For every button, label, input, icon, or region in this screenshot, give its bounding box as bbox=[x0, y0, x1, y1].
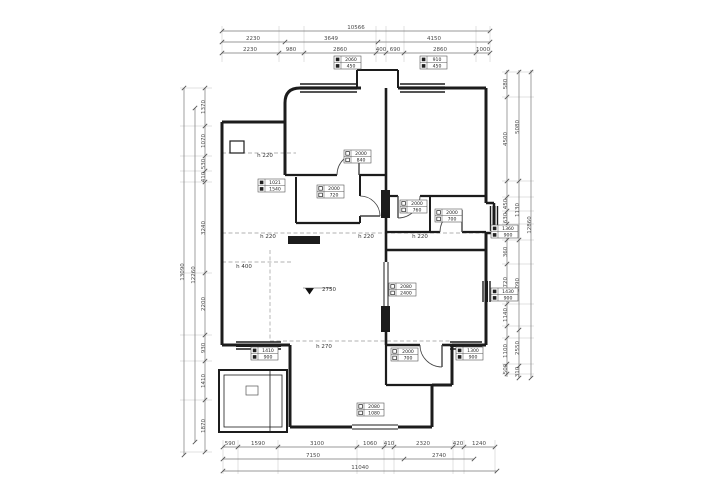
dim-text-right: 580 bbox=[503, 78, 509, 89]
door-label-box: 2000840 bbox=[344, 150, 371, 164]
height-note: h 220 bbox=[260, 234, 276, 240]
dim-text-left: 1410 bbox=[201, 374, 207, 388]
dim-text-left: 930 bbox=[201, 342, 207, 353]
dim-text-bottom: 1060 bbox=[363, 441, 377, 447]
window-key-icon bbox=[493, 227, 497, 231]
dim-text-bottom: 1590 bbox=[251, 441, 265, 447]
wall-fill bbox=[381, 306, 390, 332]
label-box-value: 2060 bbox=[345, 57, 357, 63]
window-label-box: 1410900 bbox=[251, 347, 278, 361]
label-box-value: 450 bbox=[347, 64, 356, 70]
level-value: 2750 bbox=[322, 287, 336, 293]
wall-fill bbox=[381, 190, 390, 218]
dim-text-left: 1070 bbox=[201, 134, 207, 148]
dim-text-top: 2230 bbox=[243, 47, 257, 53]
label-box-value: 1021 bbox=[269, 180, 281, 186]
wall-chamfer-corner bbox=[285, 88, 300, 103]
dim-text-right: 12860 bbox=[527, 216, 533, 234]
dim-text-left: 1870 bbox=[201, 419, 207, 433]
label-box-value: 910 bbox=[433, 57, 442, 63]
dim-text-right: 310 bbox=[515, 366, 521, 377]
door-label-box: 2000700 bbox=[391, 348, 418, 362]
door-arc bbox=[420, 345, 442, 367]
label-box-value: 2000 bbox=[328, 186, 340, 192]
dim-text-bottom: 590 bbox=[225, 441, 236, 447]
dim-text-top: 4150 bbox=[427, 36, 441, 42]
dim-text-bottom: 410 bbox=[384, 441, 395, 447]
dim-text-right: 450 bbox=[503, 198, 509, 209]
dim-text-right: 1130 bbox=[515, 203, 521, 217]
balcony-outer-wall bbox=[219, 370, 287, 432]
height-note: h 220 bbox=[412, 234, 428, 240]
dim-text-top: 690 bbox=[390, 47, 401, 53]
door-label-box: 2000720 bbox=[317, 185, 344, 199]
dim-text-top: 1000 bbox=[476, 47, 490, 53]
dim-text-right: 360 bbox=[503, 246, 509, 257]
window-label-box: 910450 bbox=[420, 56, 447, 70]
window-key-icon bbox=[493, 290, 497, 294]
dim-text-bottom: 7150 bbox=[306, 453, 320, 459]
window-key-icon bbox=[493, 233, 497, 237]
dim-text-top: 2230 bbox=[246, 36, 260, 42]
dim-text-top: 980 bbox=[286, 47, 297, 53]
dim-text-right: 630 bbox=[503, 212, 509, 223]
window-key-icon bbox=[253, 349, 257, 353]
label-box-value: 450 bbox=[433, 64, 442, 70]
level-marker: 2750 bbox=[303, 287, 336, 295]
dim-text-right: 500 bbox=[503, 363, 509, 374]
dim-text-bottom: 1240 bbox=[472, 441, 486, 447]
label-box-value: 1540 bbox=[269, 187, 281, 193]
dim-text-left: 13090 bbox=[180, 263, 186, 281]
dim-text-top: 2860 bbox=[333, 47, 347, 53]
window-key-icon bbox=[422, 58, 426, 62]
label-box-value: 2080 bbox=[368, 404, 380, 410]
label-box-value: 900 bbox=[504, 296, 513, 302]
label-box-value: 700 bbox=[448, 217, 457, 223]
label-box-value: 760 bbox=[413, 208, 422, 214]
window-key-icon bbox=[336, 64, 340, 68]
label-box-value: 2000 bbox=[446, 210, 458, 216]
door-arc bbox=[360, 196, 380, 216]
window-label-box: 1300900 bbox=[456, 347, 483, 361]
label-box-value: 840 bbox=[357, 158, 366, 164]
dim-text-left: 2200 bbox=[201, 297, 207, 311]
dim-text-bottom: 2740 bbox=[432, 453, 446, 459]
window-key-icon bbox=[458, 349, 462, 353]
label-box-value: 2400 bbox=[400, 291, 412, 297]
dim-text-top: 2860 bbox=[433, 47, 447, 53]
window-key-icon bbox=[422, 64, 426, 68]
dim-text-left: 410 bbox=[201, 171, 207, 182]
window-key-icon bbox=[260, 181, 264, 185]
dim-text-left: 530 bbox=[201, 158, 207, 169]
dim-text-right: 5080 bbox=[515, 120, 521, 134]
dim-text-right: 2550 bbox=[515, 341, 521, 355]
height-note: h 220 bbox=[257, 153, 273, 159]
window-label-box: 1430900 bbox=[491, 288, 518, 302]
label-box-value: 1080 bbox=[368, 411, 380, 417]
dim-text-right: 1100 bbox=[503, 344, 509, 358]
window-label-box: 2060450 bbox=[334, 56, 361, 70]
height-note: h 400 bbox=[236, 264, 252, 270]
dim-text-top: 400 bbox=[376, 47, 387, 53]
window-label-box: 1360900 bbox=[491, 225, 518, 239]
wall-solid-fills bbox=[288, 190, 390, 332]
floorplan-page: 1056622303649415022309802860400690286010… bbox=[0, 0, 707, 500]
label-box-value: 1300 bbox=[467, 348, 479, 354]
wall-fill bbox=[288, 236, 320, 244]
label-box-value: 1360 bbox=[502, 226, 514, 232]
window-key-icon bbox=[253, 355, 257, 359]
label-box-value: 900 bbox=[504, 233, 513, 239]
window-key-icon bbox=[493, 296, 497, 300]
door-label-box: 20801080 bbox=[357, 403, 384, 417]
balcony-fixture bbox=[246, 386, 258, 395]
dim-text-bottom: 3100 bbox=[310, 441, 324, 447]
floorplan-canvas: 1056622303649415022309802860400690286010… bbox=[0, 0, 707, 500]
dim-text-bottom: 11040 bbox=[351, 465, 369, 471]
dim-text-right: 1140 bbox=[503, 308, 509, 322]
label-box-value: 2000 bbox=[355, 151, 367, 157]
window-key-icon bbox=[260, 187, 264, 191]
dim-text-top: 10566 bbox=[347, 25, 365, 31]
dim-text-bottom: 420 bbox=[453, 441, 464, 447]
level-triangle-icon bbox=[305, 288, 314, 295]
balcony-inner-line bbox=[224, 375, 282, 427]
label-box-value: 2000 bbox=[411, 201, 423, 207]
balcony bbox=[219, 370, 287, 432]
label-box-value: 720 bbox=[330, 193, 339, 199]
window-key-icon bbox=[336, 58, 340, 62]
door-label-box: 20802400 bbox=[389, 283, 416, 297]
height-note: h 270 bbox=[316, 344, 332, 350]
height-note: h 220 bbox=[358, 234, 374, 240]
label-box-value: 2000 bbox=[402, 349, 414, 355]
label-box-value: 1410 bbox=[262, 348, 274, 354]
label-box-value: 1430 bbox=[502, 289, 514, 295]
dim-text-bottom: 2320 bbox=[416, 441, 430, 447]
dim-text-right: 4500 bbox=[503, 132, 509, 146]
label-box-value: 900 bbox=[469, 355, 478, 361]
label-box-value: 2080 bbox=[400, 284, 412, 290]
door-label-box: 2000700 bbox=[435, 209, 462, 223]
dim-text-left: 3240 bbox=[201, 221, 207, 235]
window-label-box: 10211540 bbox=[258, 179, 285, 193]
dim-text-left: 12260 bbox=[191, 266, 197, 284]
dim-text-top: 3649 bbox=[324, 36, 338, 42]
window-key-icon bbox=[458, 355, 462, 359]
dim-text-left: 1370 bbox=[201, 100, 207, 114]
label-box-value: 900 bbox=[264, 355, 273, 361]
label-box-value: 700 bbox=[404, 356, 413, 362]
door-label-box: 2000760 bbox=[400, 200, 427, 214]
door-swing-arcs bbox=[337, 153, 462, 367]
column bbox=[230, 141, 244, 153]
